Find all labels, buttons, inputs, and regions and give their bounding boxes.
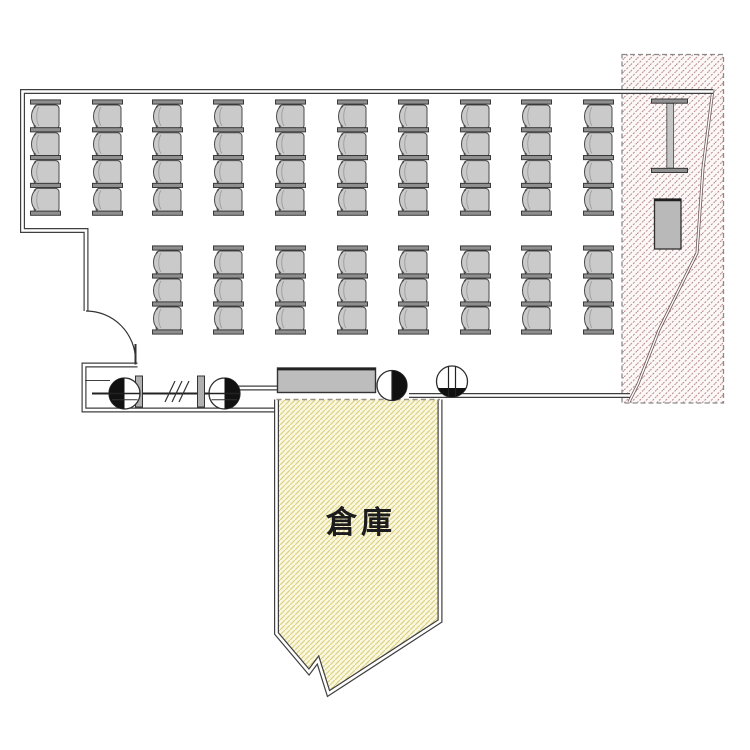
chair-back-bar xyxy=(214,100,244,104)
chair-back-bar xyxy=(522,211,552,215)
chair-back-bar xyxy=(399,100,429,104)
chair-back-bar xyxy=(522,156,552,160)
chair-back-curve xyxy=(215,252,220,273)
chair-back-bar xyxy=(214,156,244,160)
chair-back-bar xyxy=(214,128,244,132)
chair-back-curve xyxy=(154,134,159,155)
chair-back-curve xyxy=(339,189,344,210)
chair-back-bar xyxy=(93,128,123,132)
chair-back-bar xyxy=(522,128,552,132)
storage-room-hatch xyxy=(277,400,441,694)
chair-back-curve xyxy=(32,162,37,183)
chair-back-curve xyxy=(462,162,467,183)
chair-back-bar xyxy=(93,156,123,160)
chair-back-bar xyxy=(522,302,552,306)
chair-back-curve xyxy=(400,308,405,329)
chair-back-bar xyxy=(584,211,614,215)
chair-back-curve xyxy=(585,134,590,155)
chair-back-curve xyxy=(32,189,37,210)
chair-back-curve xyxy=(585,189,590,210)
chair-back-curve xyxy=(462,308,467,329)
chair-back-bar xyxy=(276,246,306,250)
chair-back-bar xyxy=(461,274,491,278)
storage-room-area: 倉庫 xyxy=(277,400,441,694)
chair-back-curve xyxy=(154,189,159,210)
restricted-area xyxy=(622,55,724,404)
chair-back-curve xyxy=(400,134,405,155)
chair-back-curve xyxy=(277,189,282,210)
chair-back-bar xyxy=(399,128,429,132)
chair-back-bar xyxy=(276,302,306,306)
chair-back-curve xyxy=(400,252,405,273)
chair-back-bar xyxy=(584,246,614,250)
rail-post xyxy=(198,376,205,407)
chair-back-curve xyxy=(339,106,344,127)
chair-back-bar xyxy=(276,128,306,132)
chair-back-bar xyxy=(399,302,429,306)
chair-back-bar xyxy=(338,211,368,215)
chair-back-bar xyxy=(153,246,183,250)
chair-back-curve xyxy=(585,162,590,183)
chair-back-curve xyxy=(585,308,590,329)
chair-back-curve xyxy=(277,252,282,273)
chair-back-bar xyxy=(276,211,306,215)
chair-back-curve xyxy=(277,280,282,301)
chair-back-bar xyxy=(399,330,429,334)
chair-back-bar xyxy=(153,330,183,334)
chair-back-curve xyxy=(154,162,159,183)
chair-back-bar xyxy=(31,100,61,104)
chair-back-curve xyxy=(462,189,467,210)
chair-back-bar xyxy=(399,246,429,250)
chair-back-curve xyxy=(215,280,220,301)
chair-back-bar xyxy=(153,128,183,132)
chair-back-bar xyxy=(276,330,306,334)
chair-back-bar xyxy=(461,330,491,334)
chair-back-bar xyxy=(584,183,614,187)
chair-back-bar xyxy=(584,274,614,278)
chair-back-bar xyxy=(461,156,491,160)
chair-back-curve xyxy=(462,106,467,127)
chair-back-bar xyxy=(461,183,491,187)
chair-back-bar xyxy=(276,274,306,278)
chair-back-bar xyxy=(522,100,552,104)
chair-back-bar xyxy=(522,246,552,250)
chair-back-curve xyxy=(215,308,220,329)
hash-marks-icon xyxy=(165,381,189,402)
chair-back-bar xyxy=(461,302,491,306)
chair-back-bar xyxy=(153,156,183,160)
chair-back-bar xyxy=(461,211,491,215)
seating-back-block xyxy=(31,100,614,215)
chair-back-curve xyxy=(585,280,590,301)
chair-back-curve xyxy=(462,252,467,273)
chair-back-bar xyxy=(214,302,244,306)
chair-back-bar xyxy=(399,156,429,160)
chair-back-curve xyxy=(462,280,467,301)
chair-back-curve xyxy=(523,162,528,183)
chair-back-bar xyxy=(31,183,61,187)
floor-plan-page: 倉庫 xyxy=(0,0,750,750)
chair-back-curve xyxy=(277,134,282,155)
seating-front-block xyxy=(153,246,614,334)
circle-marker-center-icon xyxy=(377,371,407,401)
chair-back-bar xyxy=(584,128,614,132)
chair-back-curve xyxy=(339,134,344,155)
chair-back-bar xyxy=(153,100,183,104)
chair-back-bar xyxy=(338,274,368,278)
chair-back-curve xyxy=(523,280,528,301)
chair-back-bar xyxy=(399,274,429,278)
chair-back-bar xyxy=(214,274,244,278)
chair-back-curve xyxy=(94,162,99,183)
chair-back-curve xyxy=(523,106,528,127)
storage-room-label: 倉庫 xyxy=(325,505,396,540)
circle-marker-right-icon xyxy=(209,378,240,409)
chair-back-bar xyxy=(93,100,123,104)
floor-plan-canvas: 倉庫 xyxy=(0,0,750,750)
chair-back-curve xyxy=(523,308,528,329)
chair-back-bar xyxy=(338,128,368,132)
chair-back-curve xyxy=(523,189,528,210)
chair-back-curve xyxy=(32,134,37,155)
chair-back-curve xyxy=(215,162,220,183)
chair-back-bar xyxy=(93,211,123,215)
chair-back-curve xyxy=(339,280,344,301)
chair-back-curve xyxy=(523,252,528,273)
chair-back-curve xyxy=(400,162,405,183)
chair-back-curve xyxy=(154,252,159,273)
chair-back-bar xyxy=(214,246,244,250)
chair-back-curve xyxy=(462,134,467,155)
chair-back-bar xyxy=(338,330,368,334)
chair-back-curve xyxy=(339,162,344,183)
chair-back-curve xyxy=(585,106,590,127)
chair-back-bar xyxy=(153,211,183,215)
chair-back-bar xyxy=(214,183,244,187)
chair-back-bar xyxy=(584,156,614,160)
chair-back-curve xyxy=(215,106,220,127)
chair-back-curve xyxy=(277,162,282,183)
chair-back-bar xyxy=(584,100,614,104)
chair-back-curve xyxy=(94,134,99,155)
chair-back-curve xyxy=(154,280,159,301)
chair-back-bar xyxy=(276,100,306,104)
chair-back-bar xyxy=(153,183,183,187)
chair-back-bar xyxy=(584,302,614,306)
striped-circle-marker-icon xyxy=(437,366,468,397)
chair-back-bar xyxy=(93,183,123,187)
chair-back-curve xyxy=(215,134,220,155)
chair-back-bar xyxy=(461,128,491,132)
chair-back-curve xyxy=(523,134,528,155)
rail-with-posts xyxy=(92,376,240,409)
chair-back-bar xyxy=(522,183,552,187)
chair-back-bar xyxy=(153,274,183,278)
chair-back-bar xyxy=(338,246,368,250)
door-icon xyxy=(86,311,136,365)
chair-back-bar xyxy=(522,330,552,334)
chair-back-curve xyxy=(94,106,99,127)
chair-back-curve xyxy=(215,189,220,210)
equipment-cabinet-icon xyxy=(655,199,682,249)
chair-back-curve xyxy=(339,308,344,329)
chair-back-bar xyxy=(338,156,368,160)
chair-back-bar xyxy=(399,183,429,187)
chair-back-curve xyxy=(400,280,405,301)
chair-back-bar xyxy=(584,330,614,334)
chair-back-curve xyxy=(154,106,159,127)
circle-marker-left-icon xyxy=(109,378,140,409)
chair-back-bar xyxy=(214,330,244,334)
chair-back-curve xyxy=(277,308,282,329)
chair-back-bar xyxy=(153,302,183,306)
chair-back-curve xyxy=(94,189,99,210)
chair-back-bar xyxy=(31,128,61,132)
chair-back-curve xyxy=(154,308,159,329)
chair-back-bar xyxy=(31,156,61,160)
chair-back-bar xyxy=(338,302,368,306)
chair-back-bar xyxy=(461,246,491,250)
chair-back-bar xyxy=(399,211,429,215)
chair-back-bar xyxy=(214,211,244,215)
chair-back-bar xyxy=(276,156,306,160)
chair-back-curve xyxy=(339,252,344,273)
chair-back-bar xyxy=(461,100,491,104)
chair-back-curve xyxy=(400,189,405,210)
long-table-icon xyxy=(278,368,376,393)
chair-back-bar xyxy=(276,183,306,187)
chair-back-bar xyxy=(338,183,368,187)
chair-back-bar xyxy=(31,211,61,215)
chair-back-curve xyxy=(400,106,405,127)
chair-back-curve xyxy=(32,106,37,127)
chair-back-curve xyxy=(585,252,590,273)
chair-back-bar xyxy=(522,274,552,278)
chair-back-curve xyxy=(277,106,282,127)
chair-back-bar xyxy=(338,100,368,104)
